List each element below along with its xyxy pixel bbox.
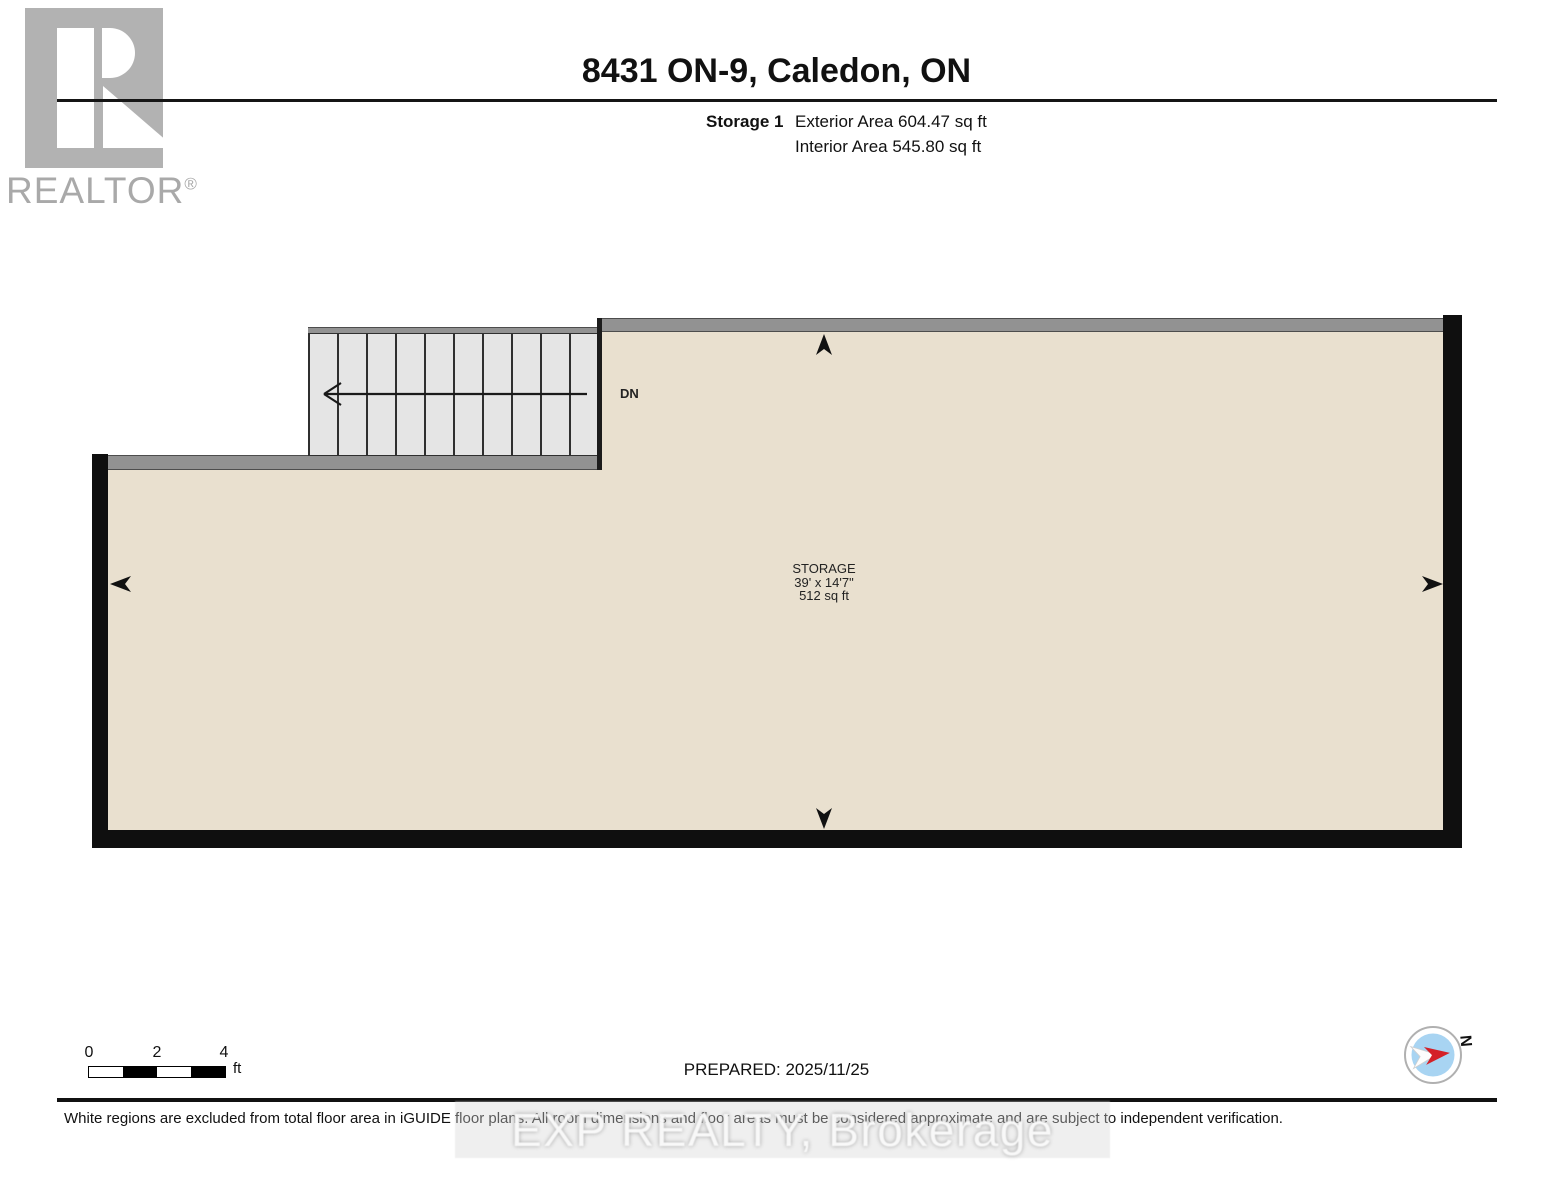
wall-bottom: [92, 830, 1462, 848]
brokerage-watermark: EXP REALTY, Brokerage: [455, 1101, 1110, 1158]
wall-top-right: [600, 318, 1443, 332]
area-summary: Storage 1 Exterior Area 604.47 sq ft Int…: [706, 109, 987, 159]
room-name: STORAGE: [674, 562, 974, 576]
arrow-left-icon: [110, 576, 131, 592]
wall-right: [1443, 315, 1462, 848]
room-area: 512 sq ft: [674, 589, 974, 603]
realtor-logo-label: REALTOR®: [6, 170, 198, 212]
arrow-up-icon: [816, 334, 832, 355]
arrow-right-icon: [1422, 576, 1443, 592]
wall-left: [92, 454, 108, 848]
stair-direction-arrow-icon: [312, 380, 592, 408]
prepared-date: PREPARED: 2025/11/25: [0, 1060, 1553, 1080]
floor-name-label: Storage 1: [706, 109, 795, 134]
storage-room-floor-left: [108, 470, 600, 830]
north-label: N: [1455, 1034, 1474, 1047]
registered-mark: ®: [184, 175, 198, 194]
header-divider: [57, 99, 1497, 102]
stairs-down-label: DN: [620, 386, 639, 401]
wall-top-left: [108, 455, 600, 470]
arrow-down-icon: [816, 808, 832, 829]
interior-area-value: Interior Area 545.80 sq ft: [795, 134, 981, 159]
page-title: 8431 ON-9, Caledon, ON: [0, 52, 1553, 91]
room-dimensions: 39' x 14'7": [674, 576, 974, 590]
compass-icon: [1403, 1025, 1465, 1087]
room-label: STORAGE 39' x 14'7" 512 sq ft: [674, 562, 974, 603]
exterior-area-value: Exterior Area 604.47 sq ft: [795, 109, 987, 134]
floorplan-page: REALTOR® 8431 ON-9, Caledon, ON Storage …: [0, 0, 1553, 1200]
stairwell-right-wall: [597, 318, 602, 470]
